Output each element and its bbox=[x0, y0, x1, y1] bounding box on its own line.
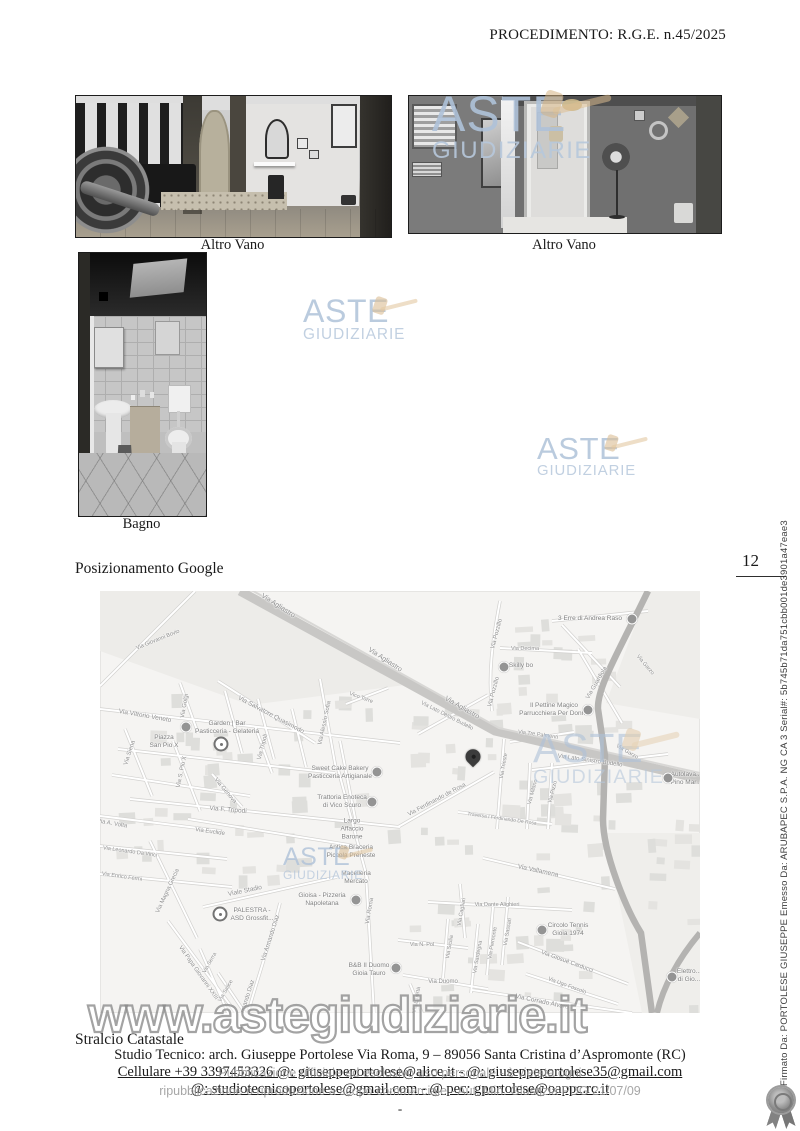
map-street-label: Via Vallamena bbox=[517, 863, 559, 878]
map-bullseye-marker bbox=[213, 907, 228, 922]
page-number: 12 bbox=[742, 551, 759, 571]
map-street-label: Via Salice bbox=[217, 979, 234, 1003]
photo-altro-vano-1 bbox=[75, 95, 392, 238]
map-street-label: Via Cagliari bbox=[457, 898, 468, 927]
map-poi-label: Sweet Cake BakeryPasticceria Artigianale bbox=[308, 765, 372, 781]
map-street-label: Via Agliastro bbox=[367, 646, 403, 673]
map-street-label: Via Ferdinando de Rosa bbox=[407, 782, 467, 818]
map-poi-label: Il Pettine MagicoParrucchiera Per Donna bbox=[519, 702, 589, 718]
map-street-label: Via Sicilia bbox=[445, 935, 455, 959]
map-street-label: Via Garzo bbox=[615, 743, 639, 760]
map-street-label: Via N. Pol bbox=[410, 942, 434, 948]
map-street-label: Via Trieste bbox=[499, 753, 509, 780]
map-poi-icon bbox=[372, 767, 383, 778]
posizionamento-heading: Posizionamento Google bbox=[75, 560, 224, 578]
map-street-label: Via Giovanni Bovio bbox=[135, 629, 180, 652]
map-street-label: Via Pizzo bbox=[547, 780, 559, 804]
map-street-label: Via Pozzillo bbox=[487, 676, 501, 707]
map-street-label: Traversa I Ferdinando De Rosa bbox=[467, 811, 537, 827]
map-street-label: Via Golgi bbox=[180, 694, 190, 719]
map-street-label: Via Duomo bbox=[428, 979, 458, 985]
map-poi-label: 3 Erre di Andrea Raso bbox=[558, 615, 622, 623]
footer-studio-line: Studio Tecnico: arch. Giuseppe Portolese… bbox=[0, 1047, 800, 1064]
map-street-label: Via Tre Palmenti bbox=[518, 729, 559, 741]
map-street-label: Via Sassari bbox=[503, 918, 514, 946]
google-map: Via AgliastroVia AgliastroVia AgliastroV… bbox=[100, 591, 700, 1013]
map-street-label: Via Piemonte bbox=[487, 926, 499, 959]
map-poi-icon bbox=[583, 705, 594, 716]
photo-altro-vano-2 bbox=[408, 95, 722, 234]
map-street-label: Via F. Tripodi bbox=[209, 805, 247, 815]
map-street-label: Via Lato Sinistro Budello bbox=[557, 753, 622, 768]
map-street-label: Via Roma bbox=[365, 898, 375, 925]
fan-silhouette bbox=[602, 143, 630, 171]
map-street-label: Viale Stadio bbox=[227, 884, 262, 898]
map-poi-icon bbox=[627, 614, 638, 625]
map-poi-label: Autolava...Pino Mar... bbox=[670, 771, 700, 787]
map-street-label: Via Magna Grecia bbox=[155, 868, 181, 914]
map-street-label: Via Giosuè Carducci bbox=[540, 950, 593, 974]
map-street-label: Via Dante Alighieri bbox=[475, 902, 520, 908]
digital-signature-text: Firmato Da: PORTOLESE GIUSEPPE Emesso Da… bbox=[779, 562, 790, 1086]
map-street-label: Via Lato Destro Budello bbox=[420, 700, 474, 732]
aste-giudiziarie-watermark: ASTE GIUDIZIARIE bbox=[537, 434, 636, 479]
map-street-label: Via Siena bbox=[123, 740, 137, 766]
map-street-label: Via Genova bbox=[213, 777, 238, 805]
legal-watermark-line-1: Pubblicazione ufficiale ad esclusivo uso… bbox=[0, 1066, 800, 1080]
map-poi-icon bbox=[351, 895, 362, 906]
procedimento-header: PROCEDIMENTO: R.G.E. n.45/2025 bbox=[489, 27, 726, 44]
map-street-label: Via Ugo Foscolo bbox=[547, 976, 587, 995]
map-street-label: Via S. Pio X bbox=[176, 756, 189, 788]
map-street-label: Via Pozzillo bbox=[490, 618, 504, 649]
map-street-label: Via Corrado Alvaro bbox=[515, 993, 570, 1011]
map-poi-label: MacelleriaMercato bbox=[341, 870, 371, 886]
map-poi-label: Elettro...di Gio... bbox=[677, 968, 700, 984]
map-street-label: Via Euclide bbox=[195, 827, 225, 837]
map-street-label: Vico Torre bbox=[348, 691, 373, 705]
map-street-label: Via Libertà bbox=[412, 987, 422, 1013]
map-pin bbox=[462, 746, 483, 767]
photo-caption: Altro Vano bbox=[408, 237, 720, 254]
gavel-icon bbox=[371, 293, 419, 322]
map-street-label: Via Leonardo Da Vinci bbox=[103, 845, 158, 859]
photo-caption: Bagno bbox=[78, 516, 205, 533]
map-poi-icon bbox=[181, 722, 192, 733]
map-street-label: Via Sardegna bbox=[472, 940, 484, 974]
map-poi-icon bbox=[667, 972, 678, 983]
map-poi-icon bbox=[663, 773, 674, 784]
map-street-label: Via Enrico Fermi bbox=[101, 871, 142, 883]
map-bullseye-marker bbox=[214, 737, 229, 752]
map-poi-icon bbox=[537, 925, 548, 936]
map-poi-label: PALESTRA -ASD Grossfit... bbox=[231, 907, 274, 923]
map-poi-label: Skilly bo bbox=[509, 662, 533, 670]
map-poi-icon bbox=[391, 963, 402, 974]
legal-watermark-line-2: ripubblicazione o riproduzione a scopo c… bbox=[0, 1084, 800, 1098]
map-poi-label: Gioisa - PizzeriaNapoletana bbox=[298, 892, 345, 908]
map-poi-label: Circolo TennisGioia 1974 bbox=[548, 922, 589, 938]
map-poi-label: Trattoria Enotecadi Vico Scuro bbox=[317, 794, 367, 810]
map-street-label: Via Decima bbox=[511, 646, 539, 652]
map-poi-icon bbox=[367, 797, 378, 808]
map-street-label: Via Guardiola bbox=[585, 666, 608, 700]
map-poi-label: Antica BraceriaPiccola Preneste bbox=[327, 844, 376, 860]
map-poi-label: Garden | BarPasticceria - Gelateria bbox=[195, 720, 259, 736]
document-page: PROCEDIMENTO: R.G.E. n.45/2025 Altro Van… bbox=[0, 0, 800, 1131]
map-street-label: Via Serra bbox=[202, 952, 219, 975]
footer-page-dash: - bbox=[0, 1101, 800, 1117]
map-poi-label: B&B Il DuomoGioia Tauro bbox=[349, 962, 390, 978]
map-street-label: Via Tripoli bbox=[257, 734, 270, 761]
map-poi-label: LargoAffaccioBarone bbox=[340, 817, 363, 840]
map-street-label: Via Milano bbox=[527, 779, 539, 805]
map-street-label: Via Alessio Sofia bbox=[317, 701, 332, 746]
photo-bagno bbox=[78, 252, 207, 517]
map-street-label: Via Agliastro bbox=[260, 592, 296, 619]
map-street-label: Via Armando Diaz bbox=[236, 979, 257, 1013]
map-street-label: Via A. Volta bbox=[100, 818, 128, 829]
aste-giudiziarie-watermark: ASTE GIUDIZIARIE bbox=[303, 296, 405, 342]
map-street-label: Via Garzo bbox=[635, 654, 655, 677]
map-poi-label: PiazzaSan Pio X bbox=[150, 734, 179, 750]
map-poi-icon bbox=[499, 662, 510, 673]
map-labels-layer: Via AgliastroVia AgliastroVia AgliastroV… bbox=[100, 591, 700, 1013]
gavel-icon bbox=[603, 432, 650, 460]
map-street-label: Via Vittorio Veneto bbox=[118, 708, 172, 724]
